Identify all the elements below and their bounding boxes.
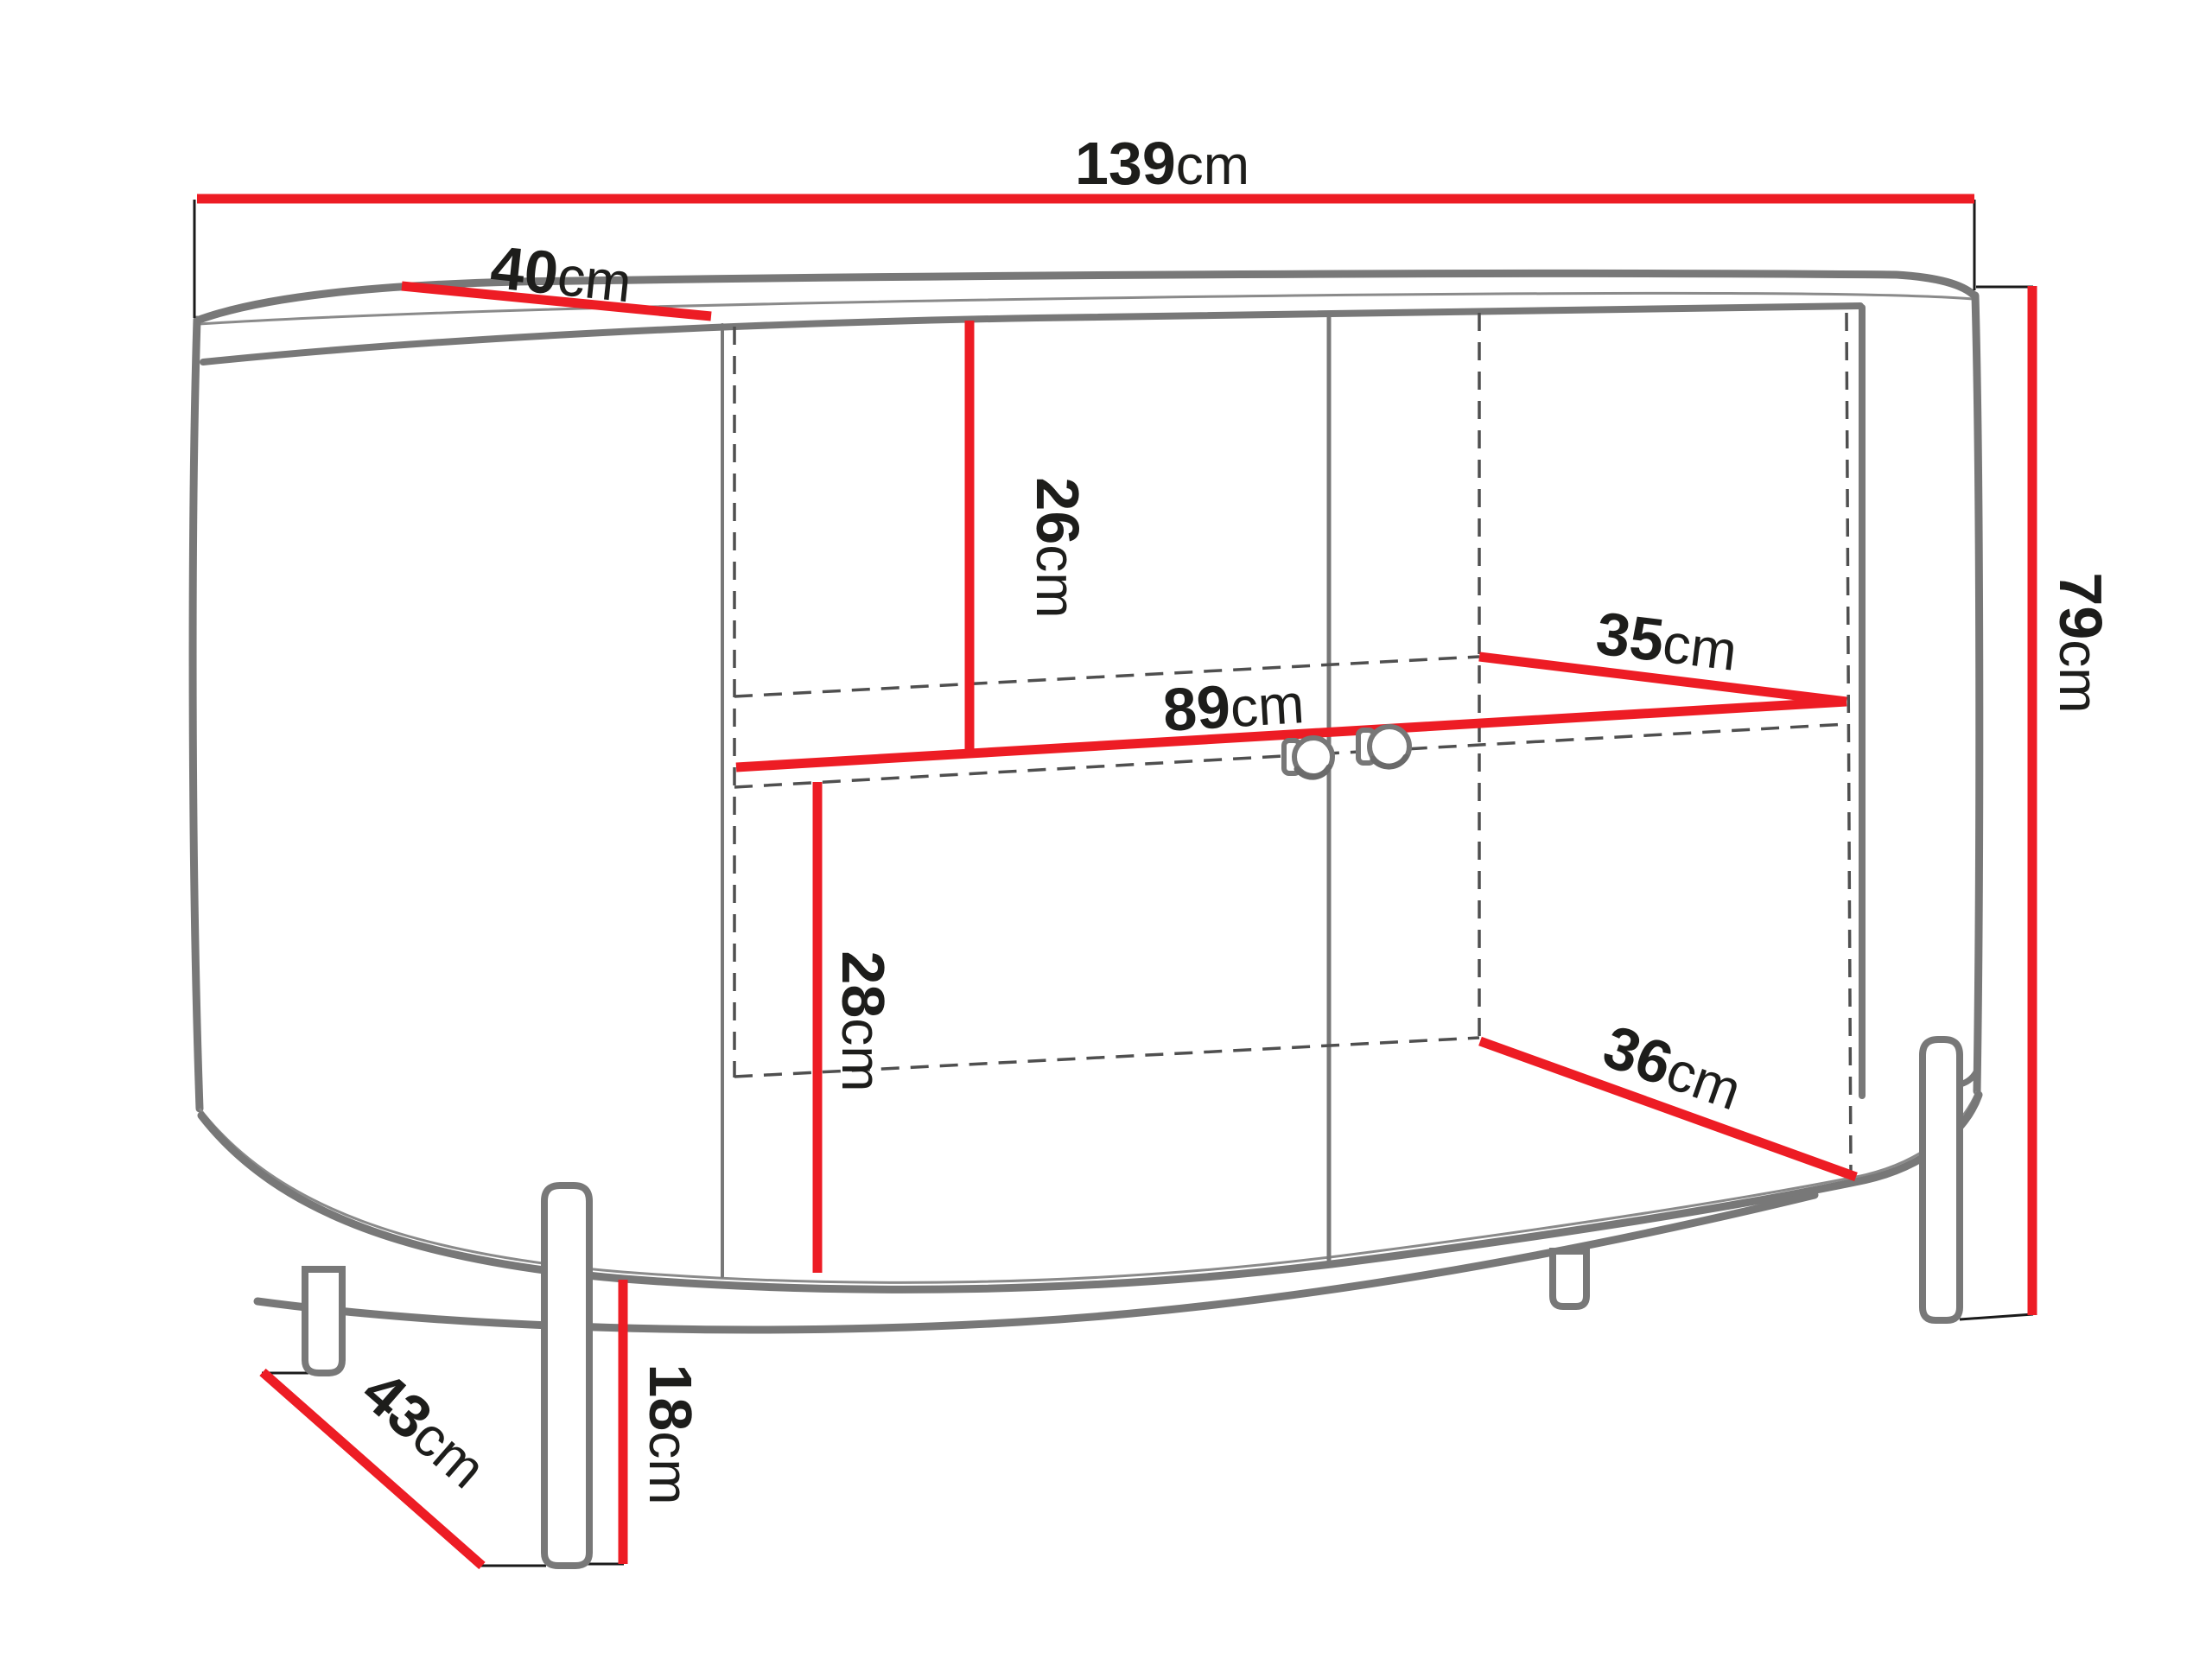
lower-height-label: 28cm xyxy=(829,950,897,1091)
overall-width-unit: cm xyxy=(1176,134,1249,196)
shelf-back-edge xyxy=(734,657,1479,696)
front-left-leg xyxy=(544,1185,589,1566)
shelf-width-value: 89 xyxy=(1161,672,1232,744)
top-depth-unit: cm xyxy=(555,245,634,315)
leg-height-label: 18cm xyxy=(637,1363,704,1504)
dimension-diagram: 139cm 40cm 26cm 89cm 35cm 28cm 36cm 79cm xyxy=(0,0,2212,1659)
shelf-depth-value: 35 xyxy=(1592,600,1668,675)
middle-rear-leg xyxy=(1553,1251,1586,1306)
dimension-lines xyxy=(197,199,2032,1566)
lower-height-value: 28 xyxy=(829,950,897,1018)
top-depth-label: 40cm xyxy=(487,233,634,315)
overall-width-label: 139cm xyxy=(1075,130,1249,197)
overall-height-label: 79cm xyxy=(2047,572,2114,713)
cabinet-body xyxy=(193,273,1980,1329)
upper-height-value: 26 xyxy=(1024,477,1091,544)
leg-height-value: 18 xyxy=(637,1363,704,1431)
left-side-edge xyxy=(193,320,200,1109)
extension-lines xyxy=(194,200,2033,1566)
right-wall-back-edge xyxy=(1847,313,1851,1173)
right-rear-leg xyxy=(1923,1039,1960,1320)
shelf-width-unit: cm xyxy=(1229,672,1306,739)
upper-height-label: 26cm xyxy=(1024,477,1091,618)
legs-diagonal-label: 43cm xyxy=(350,1357,500,1501)
top-back-edge xyxy=(197,273,1975,321)
height-extension-bottom xyxy=(1960,1314,2033,1319)
shelf-depth-unit: cm xyxy=(1660,612,1740,683)
right-side-edge xyxy=(1975,296,1980,1091)
top-depth-value: 40 xyxy=(487,233,562,308)
overall-height-value: 79 xyxy=(2047,572,2114,639)
interior-ceiling-edge xyxy=(203,306,1860,362)
overall-height-unit: cm xyxy=(2048,639,2110,713)
upper-height-unit: cm xyxy=(1025,544,1087,618)
lower-height-unit: cm xyxy=(830,1018,893,1091)
rear-left-leg xyxy=(305,1269,342,1373)
shelf-width-label: 89cm xyxy=(1161,668,1306,744)
overall-width-value: 139 xyxy=(1075,130,1176,197)
leg-height-unit: cm xyxy=(638,1431,700,1504)
cabinet-dimension-drawing: 139cm 40cm 26cm 89cm 35cm 28cm 36cm 79cm xyxy=(0,0,2212,1659)
